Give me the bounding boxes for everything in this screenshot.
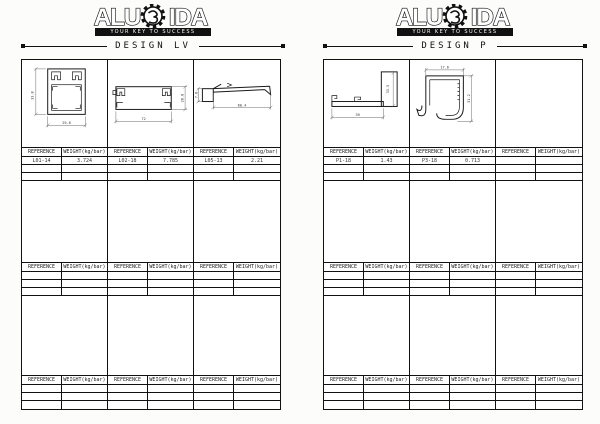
column-header-weight: WEIGHT(kg/bar)	[148, 263, 194, 271]
empty-cell	[148, 401, 194, 409]
brand-logo-mark: ALU IDA	[87, 4, 219, 30]
drawing-cell	[194, 181, 280, 262]
drawing-band	[324, 181, 582, 263]
logo-text-left: ALU	[94, 4, 140, 30]
reference-cell	[496, 157, 536, 164]
column-header-reference: REFERENCE	[108, 148, 148, 156]
column-header-reference: REFERENCE	[496, 148, 536, 156]
empty-cell	[108, 393, 148, 400]
column-header-reference: REFERENCE	[410, 148, 450, 156]
column-header-reference: REFERENCE	[22, 376, 62, 384]
drawing-cell	[410, 296, 496, 375]
empty-cell	[194, 288, 234, 295]
table-header-row: REFERENCEWEIGHT(kg/bar)REFERENCEWEIGHT(k…	[324, 148, 582, 157]
empty-cell	[22, 173, 62, 180]
empty-cell	[148, 385, 194, 392]
empty-cell	[234, 288, 280, 295]
drawing-band	[22, 181, 280, 263]
column-header-weight: WEIGHT(kg/bar)	[536, 263, 582, 271]
empty-cell	[536, 401, 582, 409]
dim-label: 33.5	[386, 85, 390, 94]
column-header-reference: REFERENCE	[496, 263, 536, 271]
drawing-cell: 33.5 39	[324, 60, 410, 147]
empty-cell	[62, 272, 108, 279]
empty-cell	[108, 173, 148, 180]
profile-drawing-frame: 28.8 72	[108, 60, 193, 147]
column-header-reference: REFERENCE	[194, 148, 234, 156]
empty-cell	[22, 280, 62, 287]
empty-cell	[324, 288, 364, 295]
column-header-reference: REFERENCE	[108, 263, 148, 271]
drawing-cell	[496, 181, 582, 262]
drawing-cell	[496, 296, 582, 375]
empty-cell	[536, 385, 582, 392]
empty-cell	[108, 401, 148, 409]
drawing-cell	[22, 296, 108, 375]
empty-cell	[450, 272, 496, 279]
empty-cell	[22, 401, 62, 409]
reference-cell: P1-18	[324, 157, 364, 164]
empty-cell	[148, 393, 194, 400]
empty-cell	[450, 173, 496, 180]
column-header-weight: WEIGHT(kg/bar)	[234, 148, 280, 156]
table-header-row: REFERENCEWEIGHT(kg/bar)REFERENCEWEIGHT(k…	[22, 263, 280, 272]
column-header-reference: REFERENCE	[410, 376, 450, 384]
empty-cell	[234, 165, 280, 172]
empty-cell	[194, 385, 234, 392]
gear-icon	[445, 6, 466, 27]
weight-cell: 0.713	[450, 157, 496, 164]
column-header-weight: WEIGHT(kg/bar)	[536, 376, 582, 384]
weight-cell: 2.21	[234, 157, 280, 164]
empty-cell	[324, 280, 364, 287]
profile-drawing-angle: 33.5 39	[324, 60, 409, 147]
empty-cell	[536, 165, 582, 172]
profile-table: 33.5 39 17.6 31.2	[323, 59, 583, 410]
empty-cell	[450, 393, 496, 400]
table-header-row: REFERENCEWEIGHT(kg/bar)REFERENCEWEIGHT(k…	[324, 263, 582, 272]
empty-cell	[450, 280, 496, 287]
profile-drawing-channel: 17.6 31.2	[410, 60, 495, 147]
column-header-weight: WEIGHT(kg/bar)	[62, 148, 108, 156]
empty-cell	[62, 173, 108, 180]
empty-cell	[148, 173, 194, 180]
empty-cell	[324, 173, 364, 180]
brand-logo: ALU IDA YOUR KEY TO SUCCESS	[21, 4, 285, 36]
weight-cell: 3.724	[62, 157, 108, 164]
column-header-reference: REFERENCE	[22, 263, 62, 271]
empty-cell	[410, 385, 450, 392]
empty-cell	[496, 173, 536, 180]
empty-cell	[194, 272, 234, 279]
empty-cell	[62, 280, 108, 287]
weight-cell: 1.43	[364, 157, 410, 164]
column-header-weight: WEIGHT(kg/bar)	[234, 263, 280, 271]
empty-cell	[496, 165, 536, 172]
panel-title: DESIGN P	[413, 41, 496, 51]
empty-cell	[234, 385, 280, 392]
empty-cell	[62, 393, 108, 400]
table-row	[22, 401, 280, 409]
title-rule	[199, 46, 281, 47]
dim-label: 72	[141, 117, 145, 121]
column-header-weight: WEIGHT(kg/bar)	[62, 263, 108, 271]
reference-cell: L05-13	[194, 157, 234, 164]
table-row	[324, 401, 582, 409]
empty-cell	[450, 385, 496, 392]
logo-text-right: IDA	[471, 4, 510, 30]
table-row: P1-181.43P3-180.713	[324, 157, 582, 165]
logo-text-left: ALU	[396, 4, 442, 30]
panel-design-lv: ALU IDA YOUR KEY TO SUCCESS DESIGN LV	[21, 4, 285, 410]
dim-label: 39	[355, 113, 359, 117]
profile-drawing-mullion: 33.8 29.8	[22, 60, 107, 147]
empty-cell	[194, 401, 234, 409]
empty-cell	[410, 393, 450, 400]
empty-cell	[62, 288, 108, 295]
drawing-cell	[324, 296, 410, 375]
drawing-cell	[324, 181, 410, 262]
empty-cell	[62, 401, 108, 409]
dim-label: 7.8	[194, 92, 198, 98]
table-row	[22, 393, 280, 401]
empty-cell	[496, 288, 536, 295]
empty-cell	[496, 401, 536, 409]
empty-cell	[364, 272, 410, 279]
column-header-reference: REFERENCE	[108, 376, 148, 384]
column-header-weight: WEIGHT(kg/bar)	[364, 148, 410, 156]
weight-cell: 7.785	[148, 157, 194, 164]
empty-cell	[108, 385, 148, 392]
dim-label: 29.8	[62, 121, 71, 125]
empty-cell	[62, 165, 108, 172]
reference-cell: L02-18	[108, 157, 148, 164]
panel-design-p: ALU IDA YOUR KEY TO SUCCESS DESIGN P 33.…	[323, 4, 587, 410]
empty-cell	[364, 165, 410, 172]
dim-label: 60.4	[238, 103, 247, 107]
dim-label: 17.6	[440, 66, 449, 70]
empty-cell	[364, 393, 410, 400]
section-title-row: DESIGN LV	[21, 41, 285, 51]
reference-cell: L01-14	[22, 157, 62, 164]
empty-cell	[410, 173, 450, 180]
profile-drawing-bead: 7.8 60.4	[194, 60, 280, 147]
brand-logo-mark: ALU IDA	[389, 4, 521, 30]
drawing-cell	[410, 181, 496, 262]
empty-cell	[536, 173, 582, 180]
empty-cell	[450, 165, 496, 172]
table-row	[324, 393, 582, 401]
column-header-weight: WEIGHT(kg/bar)	[364, 263, 410, 271]
column-header-weight: WEIGHT(kg/bar)	[364, 376, 410, 384]
drawing-cell	[108, 181, 194, 262]
column-header-reference: REFERENCE	[496, 376, 536, 384]
section-title-row: DESIGN P	[323, 41, 587, 51]
table-header-row: REFERENCEWEIGHT(kg/bar)REFERENCEWEIGHT(k…	[22, 148, 280, 157]
column-header-reference: REFERENCE	[194, 263, 234, 271]
title-rule	[497, 46, 583, 47]
empty-cell	[148, 288, 194, 295]
table-row	[22, 288, 280, 296]
empty-cell	[364, 385, 410, 392]
empty-cell	[496, 393, 536, 400]
empty-cell	[324, 385, 364, 392]
end-square	[281, 44, 285, 48]
empty-cell	[450, 401, 496, 409]
column-header-reference: REFERENCE	[22, 148, 62, 156]
empty-cell	[324, 393, 364, 400]
table-row: L01-143.724L02-187.785L05-132.21	[22, 157, 280, 165]
dim-label: 28.8	[181, 94, 185, 103]
empty-cell	[324, 272, 364, 279]
empty-cell	[536, 272, 582, 279]
column-header-reference: REFERENCE	[324, 148, 364, 156]
empty-cell	[108, 280, 148, 287]
drawing-cell: 33.8 29.8	[22, 60, 108, 147]
empty-cell	[410, 288, 450, 295]
column-header-weight: WEIGHT(kg/bar)	[148, 148, 194, 156]
end-square	[583, 44, 587, 48]
empty-cell	[450, 288, 496, 295]
empty-cell	[22, 288, 62, 295]
dim-label: 31.2	[467, 94, 471, 103]
empty-cell	[148, 280, 194, 287]
column-header-reference: REFERENCE	[410, 263, 450, 271]
drawing-cell	[496, 60, 582, 147]
empty-cell	[410, 272, 450, 279]
brand-tagline: YOUR KEY TO SUCCESS	[95, 28, 211, 36]
drawing-cell	[22, 181, 108, 262]
empty-cell	[496, 272, 536, 279]
profile-table: 33.8 29.8 28.8 72	[21, 59, 281, 410]
drawing-cell	[108, 296, 194, 375]
empty-cell	[496, 385, 536, 392]
panel-title: DESIGN LV	[107, 41, 199, 51]
drawing-cell: 17.6 31.2	[410, 60, 496, 147]
table-header-row: REFERENCEWEIGHT(kg/bar)REFERENCEWEIGHT(k…	[22, 376, 280, 385]
table-row	[324, 272, 582, 280]
column-header-reference: REFERENCE	[324, 263, 364, 271]
drawing-band: 33.8 29.8 28.8 72	[22, 60, 280, 148]
empty-cell	[496, 280, 536, 287]
column-header-weight: WEIGHT(kg/bar)	[450, 148, 496, 156]
column-header-weight: WEIGHT(kg/bar)	[62, 376, 108, 384]
empty-cell	[108, 288, 148, 295]
column-header-weight: WEIGHT(kg/bar)	[450, 263, 496, 271]
empty-cell	[22, 385, 62, 392]
table-row	[22, 165, 280, 173]
column-header-weight: WEIGHT(kg/bar)	[234, 376, 280, 384]
empty-cell	[234, 280, 280, 287]
dim-label: 33.8	[30, 91, 34, 100]
drawing-cell: 28.8 72	[108, 60, 194, 147]
empty-cell	[234, 272, 280, 279]
empty-cell	[108, 272, 148, 279]
empty-cell	[62, 385, 108, 392]
title-rule	[327, 46, 413, 47]
table-row	[324, 288, 582, 296]
logo-text-right: IDA	[169, 4, 208, 30]
empty-cell	[234, 173, 280, 180]
table-row	[324, 165, 582, 173]
empty-cell	[536, 280, 582, 287]
empty-cell	[536, 288, 582, 295]
table-row	[22, 272, 280, 280]
drawing-band	[22, 296, 280, 376]
empty-cell	[234, 393, 280, 400]
column-header-weight: WEIGHT(kg/bar)	[536, 148, 582, 156]
empty-cell	[108, 165, 148, 172]
column-header-reference: REFERENCE	[324, 376, 364, 384]
empty-cell	[234, 401, 280, 409]
empty-cell	[324, 401, 364, 409]
brand-tagline: YOUR KEY TO SUCCESS	[397, 28, 513, 36]
table-row	[324, 280, 582, 288]
table-row	[324, 173, 582, 181]
reference-cell: P3-18	[410, 157, 450, 164]
table-header-row: REFERENCEWEIGHT(kg/bar)REFERENCEWEIGHT(k…	[324, 376, 582, 385]
column-header-weight: WEIGHT(kg/bar)	[450, 376, 496, 384]
table-row	[22, 173, 280, 181]
column-header-weight: WEIGHT(kg/bar)	[148, 376, 194, 384]
empty-cell	[148, 165, 194, 172]
empty-cell	[324, 165, 364, 172]
empty-cell	[364, 173, 410, 180]
empty-cell	[410, 280, 450, 287]
empty-cell	[194, 280, 234, 287]
gear-icon	[143, 6, 164, 27]
table-row	[22, 385, 280, 393]
empty-cell	[194, 173, 234, 180]
table-row	[22, 280, 280, 288]
empty-cell	[148, 272, 194, 279]
title-rule	[25, 46, 107, 47]
weight-cell	[536, 157, 582, 164]
brand-logo: ALU IDA YOUR KEY TO SUCCESS	[323, 4, 587, 36]
empty-cell	[194, 165, 234, 172]
drawing-band	[324, 296, 582, 376]
drawing-cell: 7.8 60.4	[194, 60, 280, 147]
empty-cell	[22, 165, 62, 172]
column-header-reference: REFERENCE	[194, 376, 234, 384]
empty-cell	[410, 165, 450, 172]
empty-cell	[536, 393, 582, 400]
empty-cell	[22, 272, 62, 279]
table-row	[324, 385, 582, 393]
empty-cell	[364, 288, 410, 295]
empty-cell	[364, 280, 410, 287]
empty-cell	[364, 401, 410, 409]
drawing-band: 33.5 39 17.6 31.2	[324, 60, 582, 148]
empty-cell	[410, 401, 450, 409]
empty-cell	[22, 393, 62, 400]
drawing-cell	[194, 296, 280, 375]
empty-cell	[194, 393, 234, 400]
